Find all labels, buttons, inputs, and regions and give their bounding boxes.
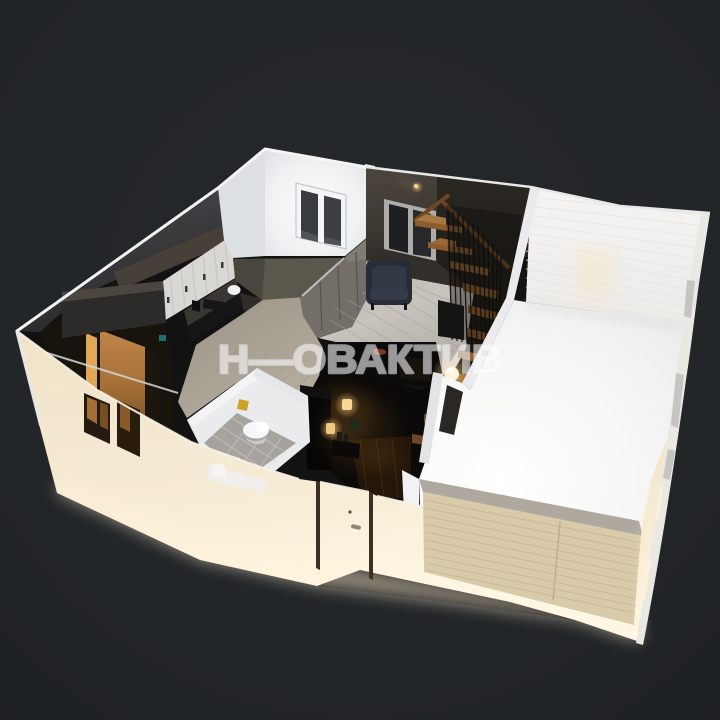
svg-text:Н—ОВАКТИВ: Н—ОВАКТИВ: [218, 338, 503, 382]
